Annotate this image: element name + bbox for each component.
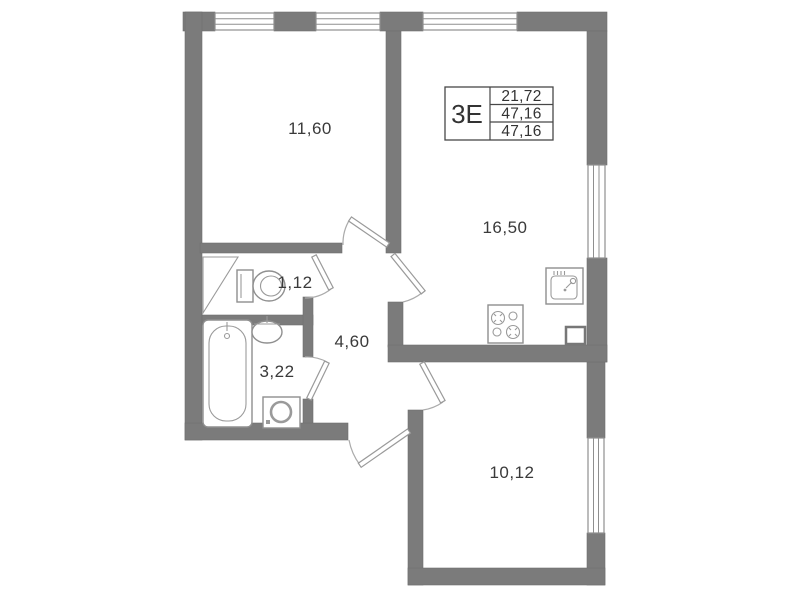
wall-hall-left-upper <box>303 297 313 357</box>
window <box>215 13 274 30</box>
wall-kitchen-lower <box>388 302 403 347</box>
wall-bedroom-bottom <box>200 243 342 253</box>
wall-top-center-pier <box>380 12 423 31</box>
wall-kitchen-bottom <box>388 345 607 362</box>
bathtub-icon <box>203 320 252 427</box>
unit-stamp: 3Е 21,72 47,16 47,16 <box>445 87 553 140</box>
wall-hall-left-lower <box>303 399 313 425</box>
room-label-wc: 1,12 <box>277 273 312 292</box>
washing-machine-icon <box>263 397 300 428</box>
stamp-row-1: 21,72 <box>501 88 541 105</box>
wall-top-pier <box>274 12 316 31</box>
stove-icon <box>488 305 523 343</box>
room-label-bedroom: 11,60 <box>288 119 332 138</box>
room-label-bedroom2: 10,12 <box>489 463 534 482</box>
window <box>588 438 604 533</box>
door-entrance <box>349 429 410 467</box>
wall-right-upper <box>587 31 607 165</box>
window <box>588 165 605 258</box>
floor-plan-page: 11,60 16,50 1,12 4,60 3,22 10,12 3Е 21,7… <box>0 0 799 600</box>
room-label-hallway: 4,60 <box>334 332 369 351</box>
wall-right-lower-a <box>587 362 605 438</box>
kitchen-sink-icon <box>546 268 583 304</box>
wall-bedroom2-left <box>408 410 423 585</box>
stamp-row-3: 47,16 <box>501 123 541 140</box>
wall-between-bedroom-kitchen <box>386 31 401 253</box>
room-label-kitchen-living: 16,50 <box>482 218 527 237</box>
wall-bottom-outer <box>408 568 605 585</box>
wall-left-outer <box>185 12 202 440</box>
room-label-bathroom: 3,22 <box>259 362 294 381</box>
unit-type-label: 3Е <box>451 99 483 129</box>
door-bedroom <box>343 217 389 247</box>
floor-plan: 11,60 16,50 1,12 4,60 3,22 10,12 3Е 21,7… <box>0 0 799 600</box>
ventilation-shaft-icon <box>203 257 238 313</box>
window <box>316 13 380 30</box>
duct-box-icon <box>566 327 585 344</box>
stamp-row-2: 47,16 <box>501 106 541 123</box>
window <box>423 13 517 30</box>
door-bedroom2 <box>420 362 445 410</box>
door-kitchen <box>391 253 425 302</box>
door-bathroom <box>305 357 329 400</box>
wall-top-right-corner <box>517 12 607 31</box>
